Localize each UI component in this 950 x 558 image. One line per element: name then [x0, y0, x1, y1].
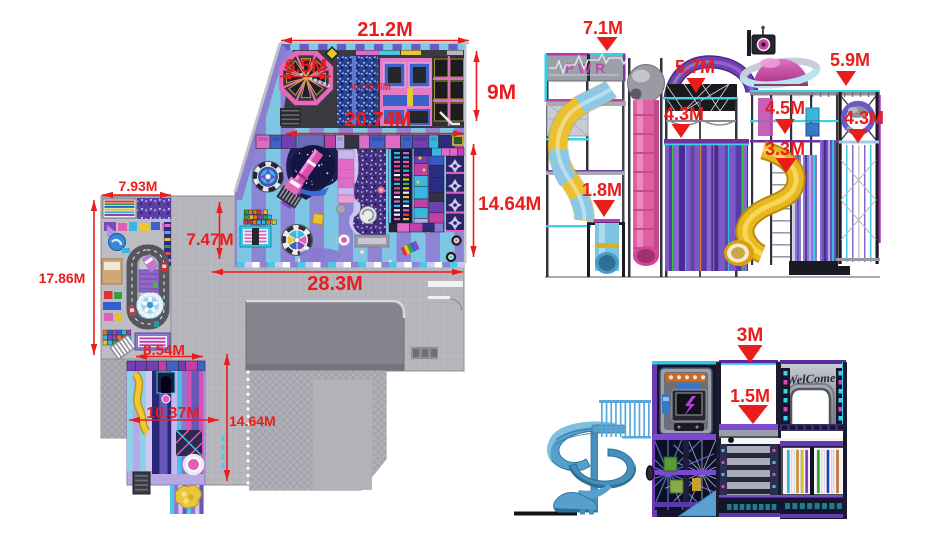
svg-text:1.5M: 1.5M	[730, 386, 770, 406]
svg-text:9M: 9M	[487, 81, 516, 104]
svg-text:7.47M: 7.47M	[186, 230, 233, 249]
svg-text:1.8M: 1.8M	[582, 180, 622, 200]
svg-text:20.74M: 20.74M	[345, 109, 412, 131]
svg-text:WelCome: WelCome	[786, 371, 836, 388]
svg-text:4.7*5.6M: 4.7*5.6M	[351, 82, 391, 93]
svg-text:7.93M: 7.93M	[119, 178, 158, 194]
svg-text:5.7M: 5.7M	[675, 57, 715, 77]
svg-text:3M: 3M	[737, 325, 763, 346]
svg-text:4.3M: 4.3M	[664, 104, 704, 124]
svg-text:3.3M: 3.3M	[765, 139, 805, 159]
svg-text:17.86M: 17.86M	[39, 270, 86, 286]
svg-text:4.3M: 4.3M	[844, 108, 884, 128]
svg-text:28.3M: 28.3M	[307, 273, 363, 295]
svg-text:14.64M: 14.64M	[478, 194, 541, 215]
svg-text:5.9M: 5.9M	[830, 50, 870, 70]
svg-text:7.1M: 7.1M	[583, 18, 623, 38]
svg-text:21.2M: 21.2M	[357, 19, 413, 41]
svg-text:4.5M: 4.5M	[765, 98, 805, 118]
svg-text:14.64M: 14.64M	[229, 413, 276, 429]
